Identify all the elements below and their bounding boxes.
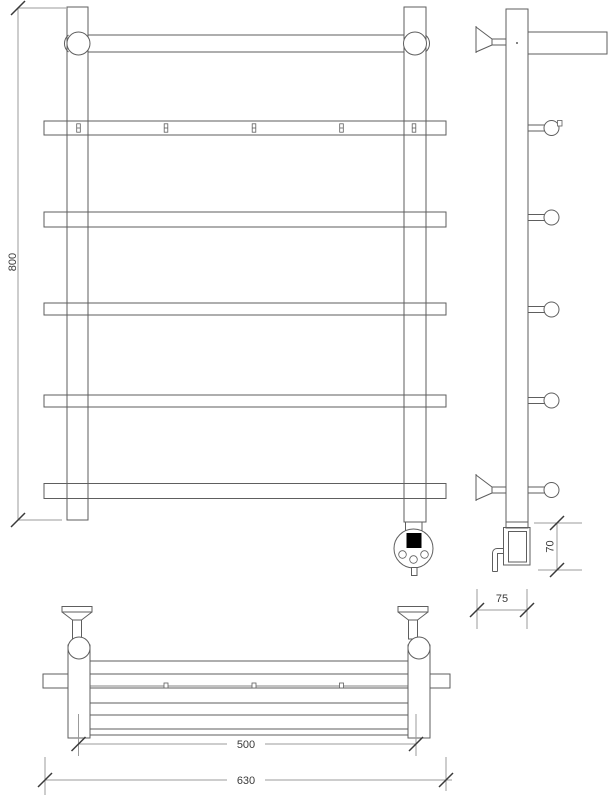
towel-bar-4 <box>44 395 446 407</box>
shelf-rail-rear <box>90 729 408 735</box>
bracket-stem <box>409 620 418 639</box>
left-post <box>67 7 88 520</box>
top-view-bracket-right <box>398 607 428 640</box>
bracket-cone-side <box>398 612 409 620</box>
heater-box-inner <box>509 532 527 563</box>
shelf-rail-middle <box>90 703 408 715</box>
side-view: 70 75 <box>470 9 607 629</box>
front-view: 800 <box>7 1 446 576</box>
bar-end-knob <box>544 121 559 136</box>
joint-mark <box>164 683 168 688</box>
joint-mark <box>252 683 256 688</box>
bar-stub-right <box>430 674 450 688</box>
dimension-depth: 75 <box>470 589 534 629</box>
dimension-heater-label: 70 <box>545 540 557 552</box>
bracket-cap <box>62 607 92 613</box>
bar-end-knob <box>544 302 559 317</box>
dimension-span-label: 500 <box>237 739 255 751</box>
dimension-width: 630 <box>38 757 453 795</box>
top-view-left-cap <box>68 637 90 659</box>
bracket-cone <box>476 27 492 52</box>
towel-bar-2 <box>44 212 446 227</box>
center-mark-dot <box>516 42 518 44</box>
heater-box <box>493 522 531 572</box>
heater-button-right <box>421 551 429 559</box>
top-rail <box>88 35 404 52</box>
towel-bar-5 <box>44 484 446 499</box>
top-view-bracket-left <box>62 607 92 640</box>
towel-bar-1 <box>44 121 446 135</box>
side-post <box>506 9 528 528</box>
bracket-cone <box>476 475 492 500</box>
bar-end-knob <box>544 393 559 408</box>
left-cap-circle <box>67 32 90 55</box>
towel-rail-drawing: 800 <box>0 0 610 800</box>
right-cap-circle <box>404 32 427 55</box>
bar-end-knob <box>544 210 559 225</box>
bracket-cap <box>398 607 428 613</box>
dimension-heater-height: 70 <box>534 516 582 577</box>
top-view-right-cap <box>408 637 430 659</box>
bracket-cone-side <box>418 612 429 620</box>
dimension-width-label: 630 <box>237 775 255 787</box>
bracket-stem <box>73 620 82 639</box>
wall-bracket-top <box>476 26 506 53</box>
right-post <box>404 7 426 522</box>
bar-joint-marks <box>77 124 416 132</box>
heater-plug-pin <box>412 568 418 576</box>
joint-mark <box>340 683 344 688</box>
technical-drawing-canvas: 800 <box>0 0 610 800</box>
bar-end-knobs <box>528 121 562 498</box>
dimension-depth-label: 75 <box>496 593 508 605</box>
towel-bar-3 <box>44 303 446 315</box>
bar-end-knob <box>544 483 559 498</box>
shelf-rail-front <box>90 661 408 674</box>
dimension-height-label: 800 <box>7 253 19 271</box>
top-view: 500 630 <box>38 607 453 796</box>
heater-display <box>407 533 422 548</box>
dimension-height: 800 <box>7 1 66 527</box>
power-cable-inner <box>498 554 504 572</box>
side-top-rail <box>528 32 607 54</box>
knob-joint-mark <box>558 121 563 127</box>
bracket-cone-side <box>62 612 73 620</box>
bar-stub-left <box>43 674 68 688</box>
heater-control <box>394 522 433 576</box>
shelf-joint-marks <box>164 683 344 688</box>
wall-bracket-bottom <box>476 474 506 501</box>
heater-button-left <box>399 551 407 559</box>
bracket-cone-side <box>82 612 93 620</box>
heater-button-middle <box>410 556 418 564</box>
